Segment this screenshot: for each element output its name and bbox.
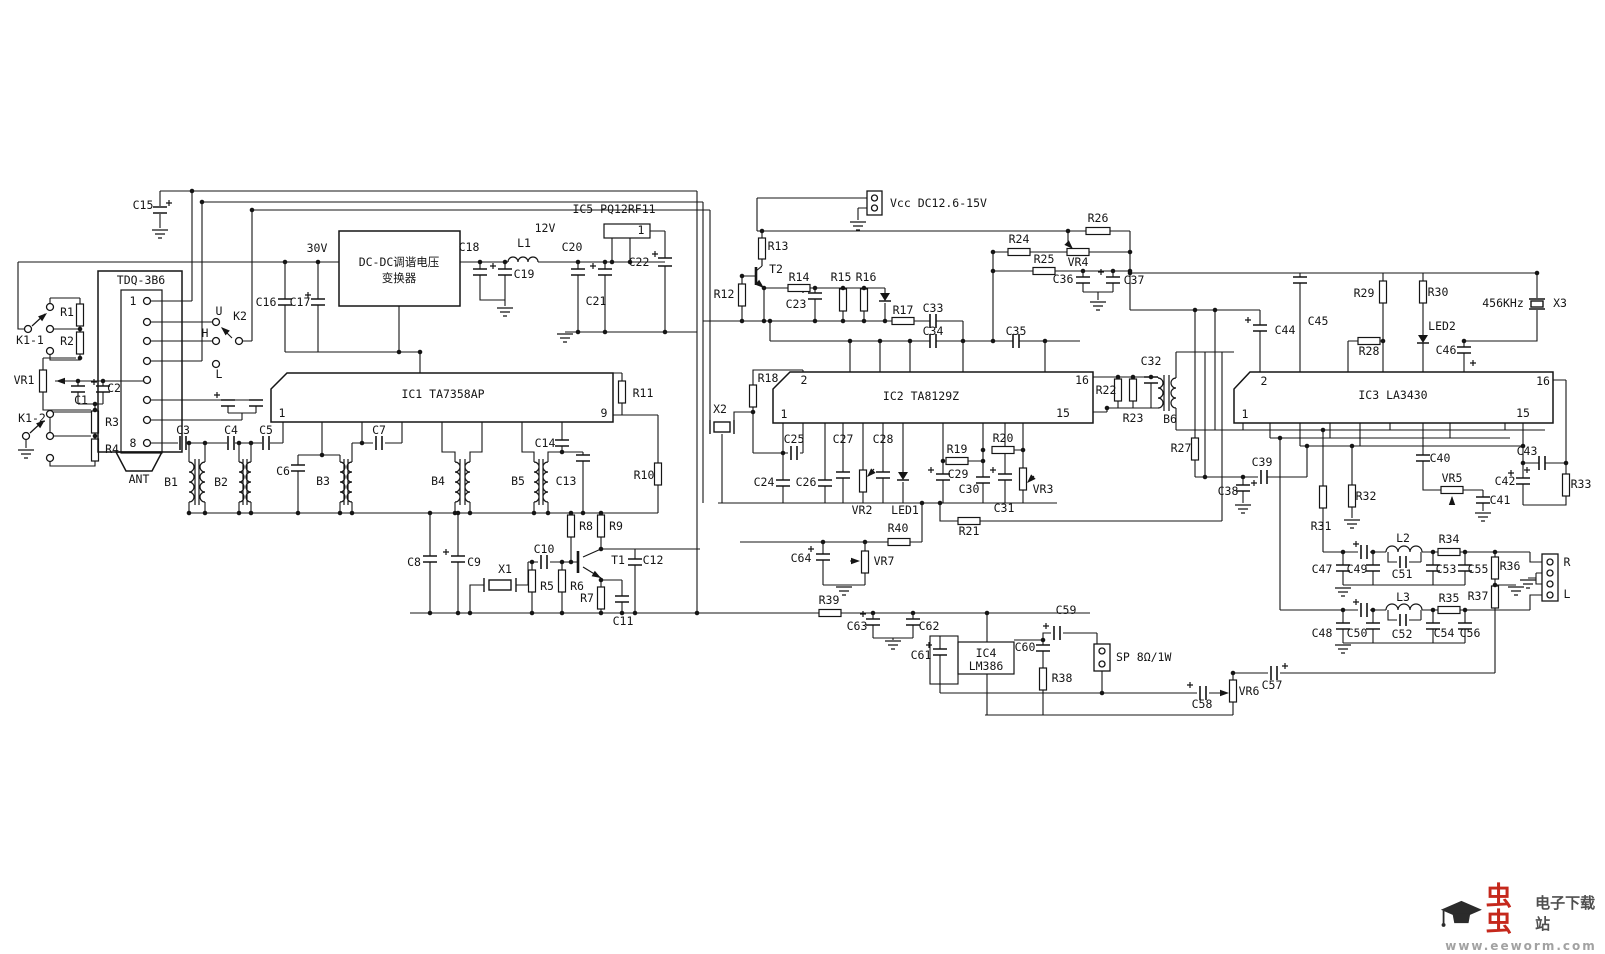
label-k1-1: K1-1 xyxy=(16,333,44,347)
label-b3: B3 xyxy=(316,474,330,488)
label-r31: R31 xyxy=(1311,519,1332,533)
label-l2: L2 xyxy=(1396,531,1410,545)
label-ic2-pin16: 16 xyxy=(1075,373,1089,387)
label-c57: C57 xyxy=(1262,678,1283,692)
label-r1: R1 xyxy=(60,305,74,319)
label-ic1-pin1: 1 xyxy=(279,406,286,420)
diode-icon xyxy=(880,293,890,301)
label-c51: C51 xyxy=(1392,567,1413,581)
label-c3: C3 xyxy=(176,423,190,437)
label-c32: C32 xyxy=(1141,354,1162,368)
label-sp: SP 8Ω/1W xyxy=(1116,650,1171,664)
label-ic2-pin1: 1 xyxy=(781,407,788,421)
label-r13: R13 xyxy=(768,239,789,253)
label-r21: R21 xyxy=(959,524,980,538)
label-c49: C49 xyxy=(1347,562,1368,576)
label-ic1: IC1 TA7358AP xyxy=(401,387,484,401)
tuner-inner-box xyxy=(121,290,162,453)
label-c59: C59 xyxy=(1056,603,1077,617)
label-l1: L1 xyxy=(517,236,531,250)
label-c54: C54 xyxy=(1434,626,1455,640)
label-r38: R38 xyxy=(1052,671,1073,685)
label-c38: C38 xyxy=(1218,484,1239,498)
led2-icon xyxy=(1418,335,1428,343)
label-r2: R2 xyxy=(60,334,74,348)
label-c48: C48 xyxy=(1312,626,1333,640)
label-c13: C13 xyxy=(556,474,577,488)
label-r7: R7 xyxy=(580,591,594,605)
label-c34: C34 xyxy=(923,324,944,338)
label-x1: X1 xyxy=(498,562,512,576)
label-c20: C20 xyxy=(562,240,583,254)
label-c26: C26 xyxy=(796,475,817,489)
label-c61: C61 xyxy=(911,648,932,662)
label-c1: C1 xyxy=(74,393,88,407)
label-c28: C28 xyxy=(873,432,894,446)
label-r10: R10 xyxy=(634,468,655,482)
label-c14: C14 xyxy=(535,436,556,450)
label-r24: R24 xyxy=(1009,232,1030,246)
label-r15: R15 xyxy=(831,270,852,284)
label-c11: C11 xyxy=(613,614,634,628)
label-b1: B1 xyxy=(164,475,178,489)
label-c9: C9 xyxy=(467,555,481,569)
label-c23: C23 xyxy=(786,297,807,311)
label-r40: R40 xyxy=(888,521,909,535)
label-v12: 12V xyxy=(535,221,556,235)
label-ic2-pin15: 15 xyxy=(1056,406,1070,420)
label-k2-h: H xyxy=(202,326,209,340)
label-c22: C22 xyxy=(629,255,650,269)
watermark: 虫虫 电子下载站 www.eeworm.com xyxy=(1440,884,1602,953)
label-k2-u: U xyxy=(216,304,223,318)
label-r27: R27 xyxy=(1171,441,1192,455)
label-c30: C30 xyxy=(959,482,980,496)
label-ic4a: IC4 xyxy=(976,646,997,660)
label-c60: C60 xyxy=(1015,640,1036,654)
label-l3: L3 xyxy=(1396,590,1410,604)
label-c64: C64 xyxy=(791,551,812,565)
label-led1: LED1 xyxy=(891,503,919,517)
label-c8: C8 xyxy=(407,555,421,569)
label-c50: C50 xyxy=(1347,626,1368,640)
label-c15: C15 xyxy=(133,198,154,212)
wiper-arrows xyxy=(36,240,1455,696)
label-c56: C56 xyxy=(1460,626,1481,640)
label-c16: C16 xyxy=(256,295,277,309)
label-c41: C41 xyxy=(1490,493,1511,507)
label-r14: R14 xyxy=(789,270,810,284)
label-c37: C37 xyxy=(1124,273,1145,287)
label-c6: C6 xyxy=(276,464,290,478)
label-k2-l: L xyxy=(216,367,223,381)
label-r17: R17 xyxy=(893,303,914,317)
label-tdq-pin8: 8 xyxy=(130,436,137,450)
label-c55: C55 xyxy=(1468,562,1489,576)
label-x3-freq: 456KHz xyxy=(1482,296,1524,310)
label-v30: 30V xyxy=(307,241,328,255)
label-out-r: R xyxy=(1564,555,1571,569)
label-c18: C18 xyxy=(459,240,480,254)
label-c43: C43 xyxy=(1517,444,1538,458)
label-r5: R5 xyxy=(540,579,554,593)
label-tdq-pin1: 1 xyxy=(130,294,137,308)
label-vr4: VR4 xyxy=(1068,255,1089,269)
label-ic1-pin9: 9 xyxy=(601,406,608,420)
label-t1: T1 xyxy=(611,553,625,567)
label-c47: C47 xyxy=(1312,562,1333,576)
label-r33: R33 xyxy=(1571,477,1592,491)
label-r20: R20 xyxy=(993,431,1014,445)
label-r36: R36 xyxy=(1500,559,1521,573)
label-c5: C5 xyxy=(259,423,273,437)
schematic-page: C15K1-1R1R2VR1C1C2K1-2R3R4TDQ-3B618ANTUK… xyxy=(0,0,1605,954)
watermark-url: www.eeworm.com xyxy=(1440,939,1602,953)
label-c4: C4 xyxy=(224,423,238,437)
label-ic5-pin1: 1 xyxy=(638,223,645,237)
watermark-brand: 虫虫 xyxy=(1486,884,1532,936)
label-r11: R11 xyxy=(633,386,654,400)
label-r39: R39 xyxy=(819,593,840,607)
label-ic2: IC2 TA8129Z xyxy=(883,389,959,403)
antenna-shape xyxy=(116,452,162,471)
label-c19: C19 xyxy=(514,267,535,281)
label-t2: T2 xyxy=(769,262,783,276)
led1-icon xyxy=(898,472,908,480)
label-vr5: VR5 xyxy=(1442,471,1463,485)
label-k2: K2 xyxy=(233,309,247,323)
label-c25: C25 xyxy=(784,432,805,446)
label-c46: C46 xyxy=(1436,343,1457,357)
label-c58: C58 xyxy=(1192,697,1213,711)
label-ic4b: LM386 xyxy=(969,659,1004,673)
label-x2: X2 xyxy=(713,402,727,416)
label-c7: C7 xyxy=(372,423,386,437)
label-c39: C39 xyxy=(1252,455,1273,469)
label-c62: C62 xyxy=(919,619,940,633)
label-ic3-pin2: 2 xyxy=(1261,374,1268,388)
label-r28: R28 xyxy=(1359,344,1380,358)
label-b6: B6 xyxy=(1163,412,1177,426)
label-out-l: L xyxy=(1564,587,1571,601)
label-ic3-pin15: 15 xyxy=(1516,406,1530,420)
label-r19: R19 xyxy=(947,442,968,456)
label-c29: C29 xyxy=(948,467,969,481)
label-c44: C44 xyxy=(1275,323,1296,337)
label-r9: R9 xyxy=(609,519,623,533)
label-ant: ANT xyxy=(129,472,150,486)
watermark-site: 电子下载站 xyxy=(1535,892,1602,936)
label-r22: R22 xyxy=(1096,383,1117,397)
label-led2: LED2 xyxy=(1428,319,1456,333)
label-c35: C35 xyxy=(1006,324,1027,338)
label-c17: C17 xyxy=(290,295,311,309)
label-r12: R12 xyxy=(714,287,735,301)
label-ic3-pin16: 16 xyxy=(1536,374,1550,388)
label-r32: R32 xyxy=(1356,489,1377,503)
label-c2: C2 xyxy=(107,381,121,395)
label-r26: R26 xyxy=(1088,211,1109,225)
label-r35: R35 xyxy=(1439,591,1460,605)
label-c42: C42 xyxy=(1495,474,1516,488)
ic4-bracket xyxy=(930,636,958,684)
schematic-canvas: C15K1-1R1R2VR1C1C2K1-2R3R4TDQ-3B618ANTUK… xyxy=(0,0,1605,954)
label-r23: R23 xyxy=(1123,411,1144,425)
label-k1-2: K1-2 xyxy=(18,411,46,425)
label-c10: C10 xyxy=(534,542,555,556)
label-ic3: IC3 LA3430 xyxy=(1358,388,1427,402)
label-vr7: VR7 xyxy=(874,554,895,568)
label-ic3-pin1: 1 xyxy=(1242,407,1249,421)
label-r37: R37 xyxy=(1468,589,1489,603)
label-c63: C63 xyxy=(847,619,868,633)
label-r29: R29 xyxy=(1354,286,1375,300)
label-x3: X3 xyxy=(1553,296,1567,310)
label-c40: C40 xyxy=(1430,451,1451,465)
label-vcc: Vcc DC12.6-15V xyxy=(890,196,987,210)
label-r4: R4 xyxy=(105,442,119,456)
label-b5: B5 xyxy=(511,474,525,488)
label-ic5: IC5 PQ12RF11 xyxy=(572,202,655,216)
label-c21: C21 xyxy=(586,294,607,308)
label-c12: C12 xyxy=(643,553,664,567)
label-dcdc1: DC-DC调谐电压 xyxy=(359,255,440,269)
label-c24: C24 xyxy=(754,475,775,489)
label-c31: C31 xyxy=(994,501,1015,515)
label-r3: R3 xyxy=(105,415,119,429)
label-ic2-pin2: 2 xyxy=(801,373,808,387)
label-r25: R25 xyxy=(1034,252,1055,266)
label-c52: C52 xyxy=(1392,627,1413,641)
label-dcdc2: 变换器 xyxy=(382,271,417,285)
label-c33: C33 xyxy=(923,301,944,315)
label-r16: R16 xyxy=(856,270,877,284)
graduation-cap-icon xyxy=(1440,896,1483,936)
label-tdq: TDQ-3B6 xyxy=(117,273,166,287)
label-r34: R34 xyxy=(1439,532,1460,546)
label-c45: C45 xyxy=(1308,314,1329,328)
label-r8: R8 xyxy=(579,519,593,533)
connectors xyxy=(23,191,1559,671)
label-b4: B4 xyxy=(431,474,445,488)
label-vr1: VR1 xyxy=(14,373,35,387)
label-vr3: VR3 xyxy=(1033,482,1054,496)
label-c53: C53 xyxy=(1436,562,1457,576)
label-vr2: VR2 xyxy=(852,503,873,517)
label-b2: B2 xyxy=(214,475,228,489)
label-c36: C36 xyxy=(1053,272,1074,286)
label-c27: C27 xyxy=(833,432,854,446)
label-r30: R30 xyxy=(1428,285,1449,299)
label-r18: R18 xyxy=(758,371,779,385)
label-vr6: VR6 xyxy=(1239,684,1260,698)
